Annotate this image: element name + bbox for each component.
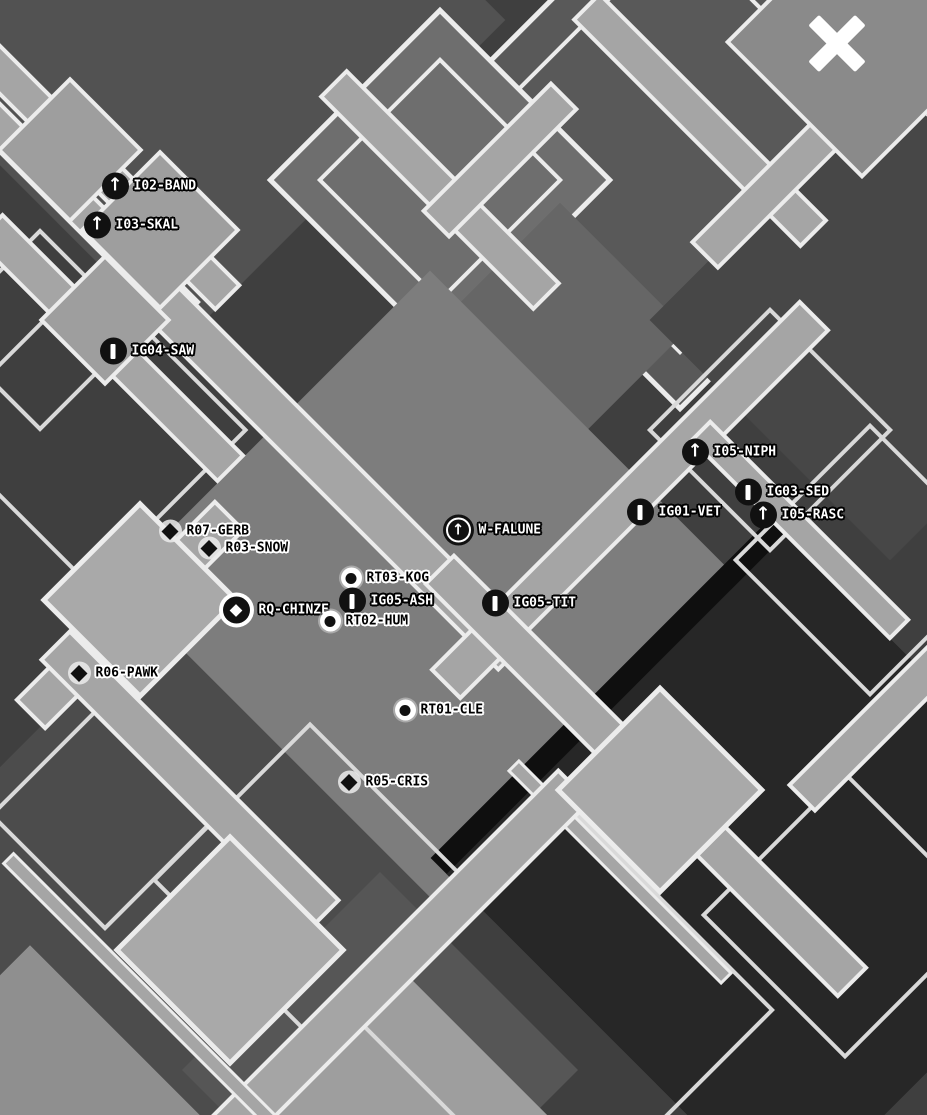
marker-ig04-saw[interactable]: IG04-SAW bbox=[100, 338, 195, 365]
marker-label: IG03-SED bbox=[767, 485, 830, 500]
marker-r03-snow[interactable]: R03-SNOW bbox=[198, 537, 289, 560]
marker-rq-chinze[interactable]: RQ-CHINZE bbox=[219, 593, 329, 628]
bar-circle-icon bbox=[482, 590, 509, 617]
marker-label: RT01-CLE bbox=[421, 703, 484, 718]
marker-i03-skal[interactable]: I03-SKAL bbox=[84, 212, 179, 239]
dot-circle-icon bbox=[395, 700, 416, 721]
marker-ig05-tit[interactable]: IG05-TIT bbox=[482, 590, 577, 617]
marker-label: R05-CRIS bbox=[366, 775, 429, 790]
diamond-icon bbox=[159, 520, 182, 543]
marker-label: I02-BAND bbox=[134, 179, 197, 194]
diamond-ring-icon bbox=[219, 593, 254, 628]
marker-label: IG01-VET bbox=[659, 505, 722, 520]
marker-layer: I02-BANDI03-SKALIG04-SAWI05-NIPHIG03-SED… bbox=[0, 0, 927, 1115]
diamond-icon bbox=[68, 662, 91, 685]
marker-w-falune[interactable]: W-FALUNE bbox=[443, 515, 542, 546]
marker-label: R03-SNOW bbox=[226, 541, 289, 556]
marker-label: I05-RASC bbox=[782, 508, 845, 523]
marker-label: RT03-KOG bbox=[367, 571, 430, 586]
marker-rt02-hum[interactable]: RT02-HUM bbox=[320, 611, 409, 632]
marker-label: IG05-ASH bbox=[371, 594, 434, 609]
diamond-icon bbox=[338, 771, 361, 794]
arrow-circle-icon bbox=[102, 173, 129, 200]
marker-label: RT02-HUM bbox=[346, 614, 409, 629]
arrow-circle-icon bbox=[750, 502, 777, 529]
marker-r05-cris[interactable]: R05-CRIS bbox=[338, 771, 429, 794]
arrow-circle-icon bbox=[682, 439, 709, 466]
arrow-circle-icon bbox=[84, 212, 111, 239]
marker-label: IG04-SAW bbox=[132, 344, 195, 359]
marker-label: I05-NIPH bbox=[714, 445, 777, 460]
dot-circle-icon bbox=[320, 611, 341, 632]
marker-label: I03-SKAL bbox=[116, 218, 179, 233]
marker-r06-pawk[interactable]: R06-PAWK bbox=[68, 662, 159, 685]
marker-i05-niph[interactable]: I05-NIPH bbox=[682, 439, 777, 466]
bar-circle-icon bbox=[627, 499, 654, 526]
close-button[interactable] bbox=[806, 12, 868, 74]
marker-rt01-cle[interactable]: RT01-CLE bbox=[395, 700, 484, 721]
marker-rt03-kog[interactable]: RT03-KOG bbox=[341, 568, 430, 589]
ring-arrow-icon bbox=[443, 515, 474, 546]
dot-circle-icon bbox=[341, 568, 362, 589]
marker-i02-band[interactable]: I02-BAND bbox=[102, 173, 197, 200]
bar-circle-icon bbox=[100, 338, 127, 365]
marker-label: RQ-CHINZE bbox=[259, 603, 329, 618]
marker-label: IG05-TIT bbox=[514, 596, 577, 611]
marker-label: W-FALUNE bbox=[479, 523, 542, 538]
diamond-icon bbox=[198, 537, 221, 560]
marker-ig01-vet[interactable]: IG01-VET bbox=[627, 499, 722, 526]
game-map-screen: I02-BANDI03-SKALIG04-SAWI05-NIPHIG03-SED… bbox=[0, 0, 927, 1115]
marker-label: R06-PAWK bbox=[96, 666, 159, 681]
marker-i05-rasc[interactable]: I05-RASC bbox=[750, 502, 845, 529]
